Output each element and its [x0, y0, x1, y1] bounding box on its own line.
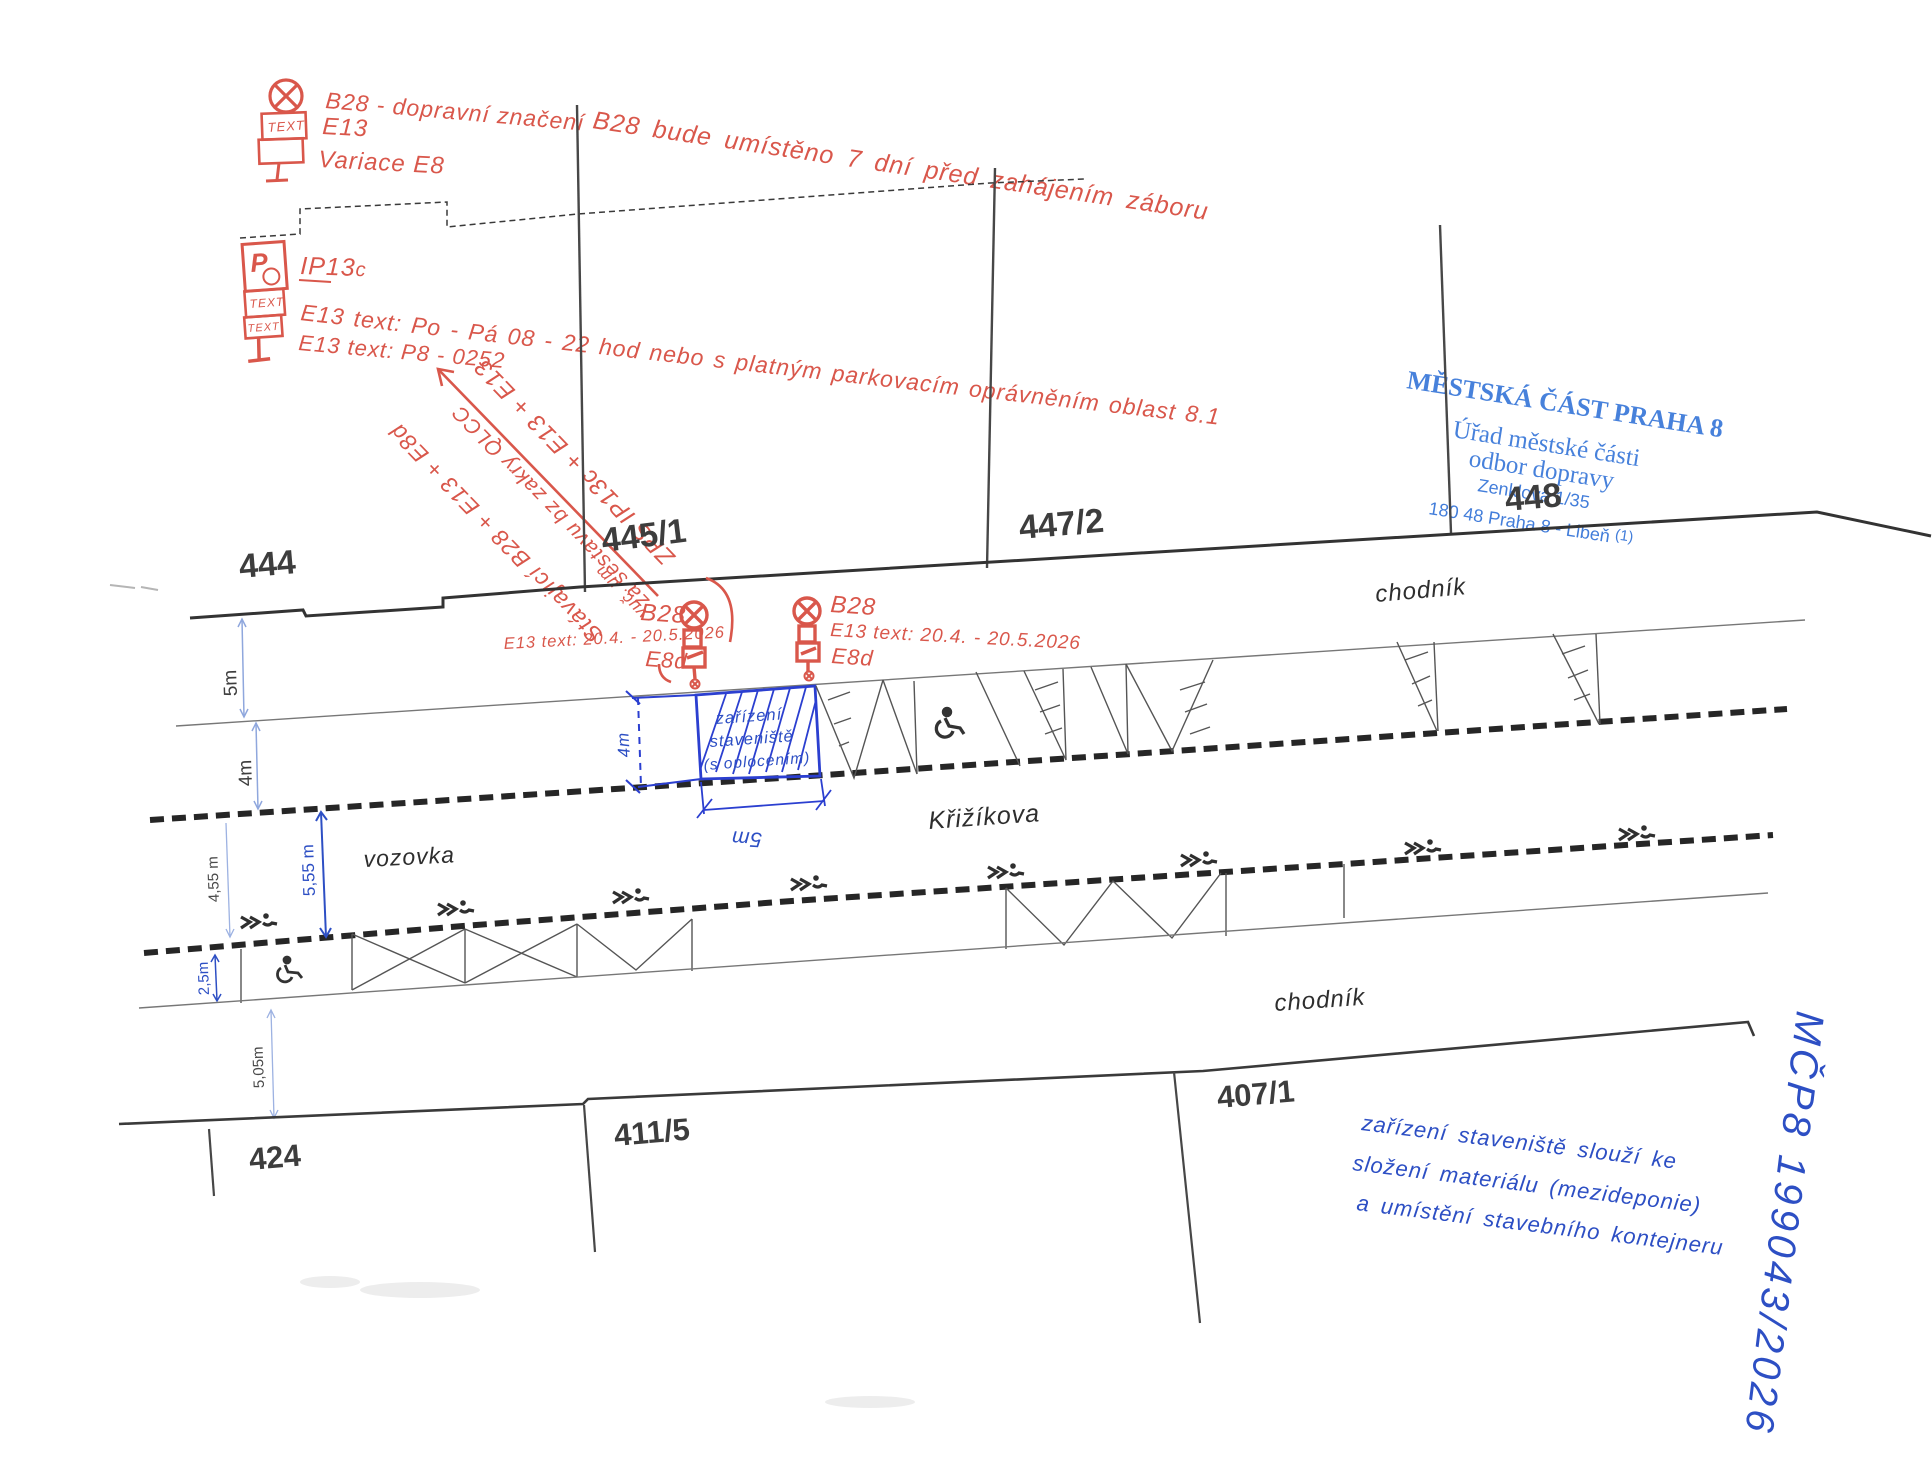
svg-text:2,5m: 2,5m	[195, 962, 213, 996]
svg-text:5m: 5m	[220, 669, 242, 696]
svg-text:vozovka: vozovka	[363, 841, 456, 872]
svg-text:4m: 4m	[613, 731, 634, 758]
svg-text:5,05m: 5,05m	[250, 1046, 268, 1088]
svg-text:B28: B28	[640, 599, 687, 629]
svg-text:B28: B28	[830, 591, 877, 621]
svg-text:5m: 5m	[730, 826, 763, 851]
svg-text:444: 444	[237, 543, 297, 586]
svg-text:5,55 m: 5,55 m	[298, 844, 319, 897]
svg-text:E8d: E8d	[831, 643, 875, 671]
svg-text:4m: 4m	[235, 759, 257, 786]
svg-text:448: 448	[1503, 476, 1563, 519]
svg-text:407/1: 407/1	[1216, 1073, 1296, 1115]
svg-text:4,55 m: 4,55 m	[204, 856, 223, 902]
svg-text:TEXT: TEXT	[249, 295, 285, 311]
svg-text:P: P	[249, 247, 269, 278]
svg-text:TEXT: TEXT	[267, 117, 305, 135]
svg-text:424: 424	[248, 1138, 303, 1177]
svg-text:447/2: 447/2	[1017, 502, 1105, 547]
svg-text:411/5: 411/5	[613, 1111, 692, 1152]
svg-text:TEXT: TEXT	[247, 321, 280, 335]
svg-text:E8d: E8d	[645, 646, 689, 674]
svg-text:E13: E13	[322, 113, 369, 142]
